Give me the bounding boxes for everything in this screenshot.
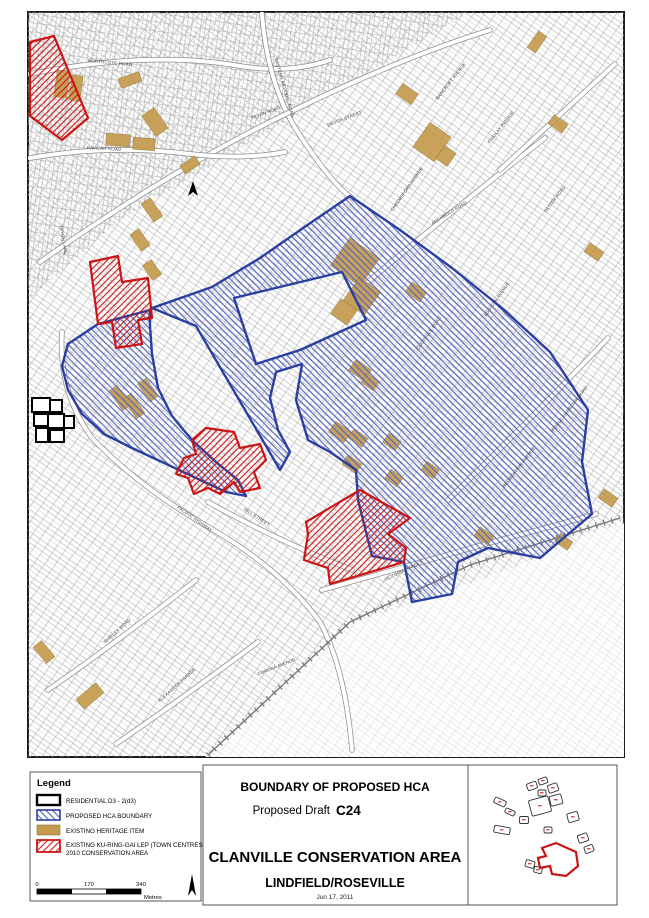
inset-label-mark — [528, 863, 532, 864]
heritage-item — [106, 133, 131, 147]
d3-parcel — [36, 428, 48, 442]
legend-label-hca: PROPOSED HCA BOUNDARY — [66, 813, 152, 820]
scale-0: 0 — [35, 882, 38, 888]
legend-box — [30, 772, 201, 901]
inset-label-mark — [540, 792, 544, 793]
scale-unit: Metres — [144, 895, 162, 901]
map-content: NORTHCOTE ROADEASTERN ARTERIAL ROADTRYON… — [28, 12, 642, 757]
heritage-item — [133, 137, 156, 151]
legend-title: Legend — [37, 778, 71, 789]
legend-label-lep-1: EXISTING KU-RING-GAI LEP (TOWN CENTRES) — [66, 842, 205, 849]
legend-label-residential: RESIDENTIAL D3 - 2(d3) — [66, 798, 136, 805]
scale-bar-seg2 — [106, 889, 141, 894]
inset-label-mark — [498, 801, 502, 802]
hca-swatch — [37, 810, 60, 820]
d3-parcel — [34, 414, 48, 426]
title-line1: BOUNDARY OF PROPOSED HCA — [240, 780, 430, 794]
d3-parcel — [48, 414, 64, 428]
d3-parcel — [32, 398, 50, 412]
inset-box — [468, 765, 617, 905]
d3-parcel — [64, 416, 74, 428]
heritage-swatch — [37, 825, 60, 835]
inset-label-mark — [571, 816, 575, 817]
lep-swatch — [37, 840, 60, 852]
inset-label-mark — [508, 811, 512, 812]
legend-panel: Legend RESIDENTIAL D3 - 2(d3) PROPOSED H… — [30, 772, 205, 901]
legend-label-heritage: EXISTING HERITAGE ITEM — [66, 828, 144, 835]
map-sheet: NORTHCOTE ROADEASTERN ARTERIAL ROADTRYON… — [0, 0, 649, 918]
scale-340: 340 — [136, 882, 146, 888]
d3-parcel — [50, 430, 64, 442]
title-suburb: LINDFIELD/ROSEVILLE — [265, 876, 405, 890]
inset-label-mark — [500, 829, 504, 830]
legend-label-lep-2: 2010 CONSERVATION AREA — [66, 850, 149, 857]
title-panel: BOUNDARY OF PROPOSED HCA Proposed Draft … — [203, 765, 468, 905]
scale-bar-seg1 — [37, 889, 72, 894]
inset-locator-map — [468, 765, 617, 905]
inset-label-mark — [581, 837, 585, 838]
inset-label-mark — [522, 819, 526, 820]
inset-label-mark — [554, 799, 558, 800]
residential-swatch — [37, 795, 60, 805]
inset-label-mark — [538, 805, 542, 806]
map-sheet-svg: NORTHCOTE ROADEASTERN ARTERIAL ROADTRYON… — [0, 0, 649, 918]
inset-label-mark — [546, 829, 550, 830]
inset-label-mark — [587, 848, 591, 849]
inset-label-mark — [551, 787, 555, 788]
inset-label-mark — [541, 780, 545, 781]
title-draft-code: C24 — [336, 803, 361, 818]
inset-label-mark — [536, 869, 540, 870]
title-date: Jun 17, 2011 — [316, 894, 353, 901]
title-draft-prefix: Proposed Draft — [253, 805, 331, 817]
d3-parcel — [50, 400, 62, 412]
inset-label-mark — [530, 785, 534, 786]
title-area-name: CLANVILLE CONSERVATION AREA — [209, 849, 462, 866]
scale-170: 170 — [84, 882, 94, 888]
